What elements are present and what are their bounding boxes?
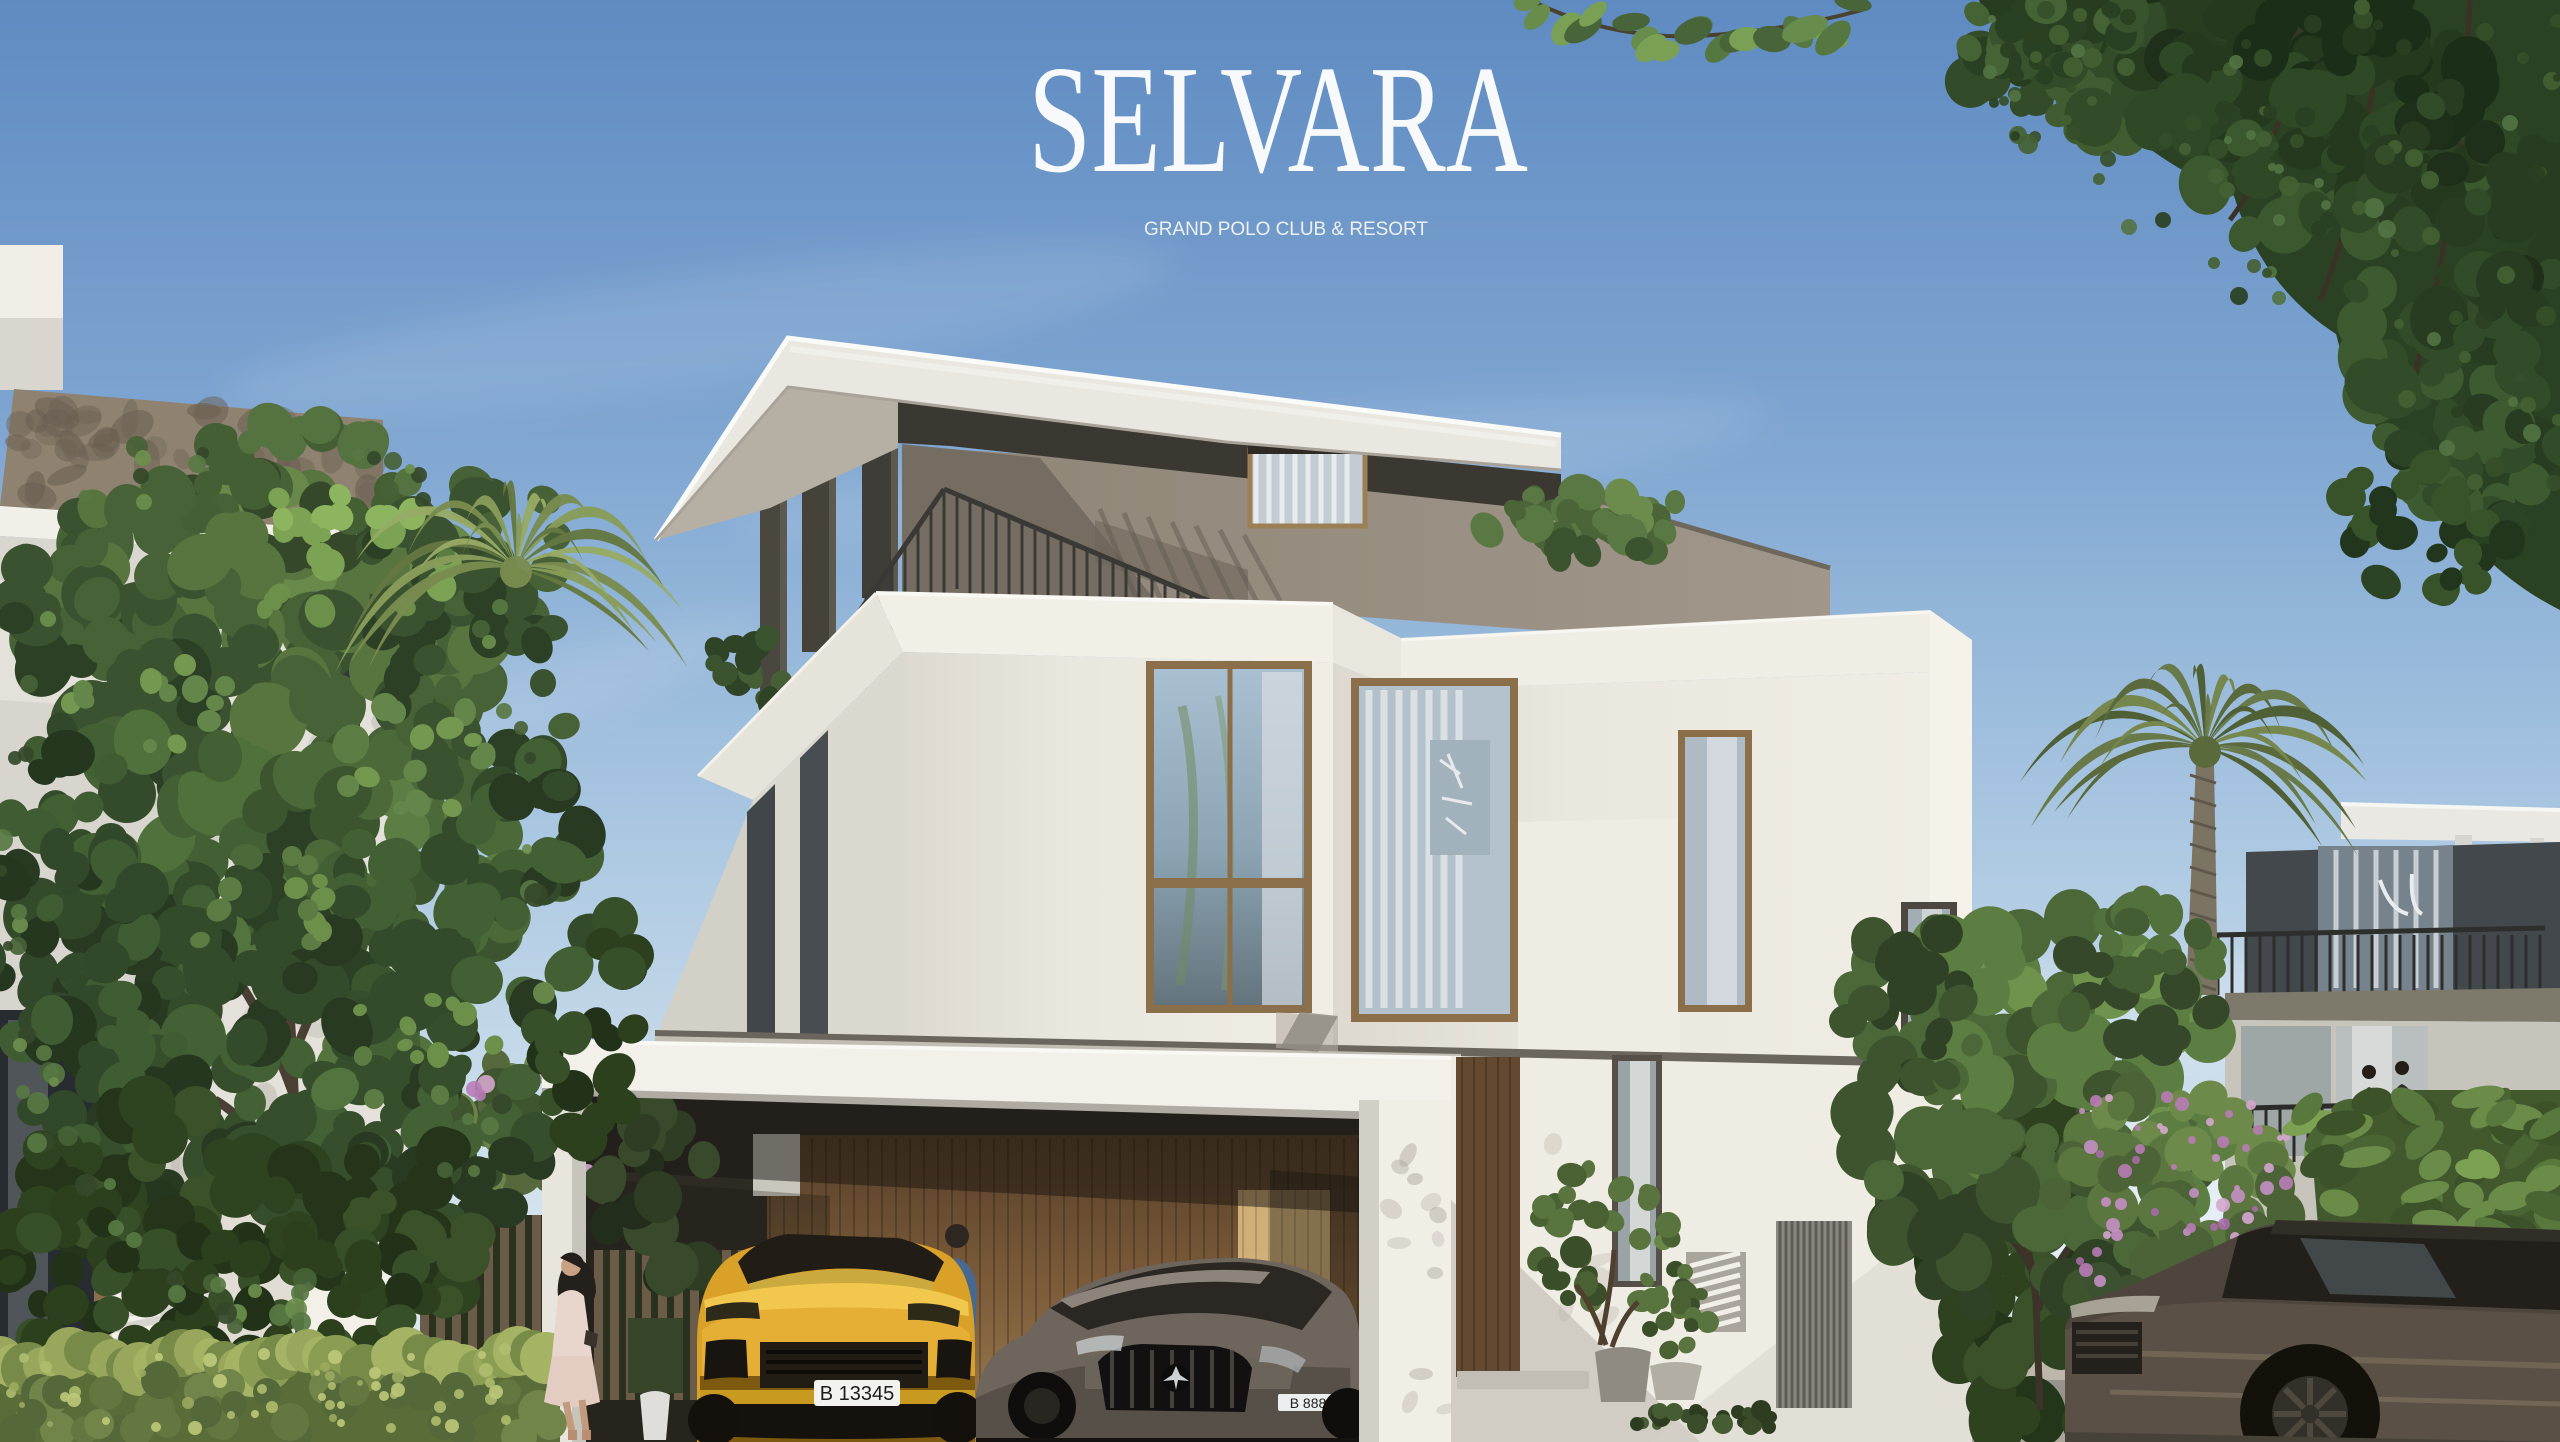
svg-text:B 13345: B 13345 — [820, 1383, 895, 1405]
svg-text:GRAND POLO CLUB & RESORT: GRAND POLO CLUB & RESORT — [1144, 219, 1428, 240]
svg-text:B 888: B 888 — [1290, 1395, 1327, 1411]
svg-text:SELVARA: SELVARA — [1028, 35, 1528, 205]
